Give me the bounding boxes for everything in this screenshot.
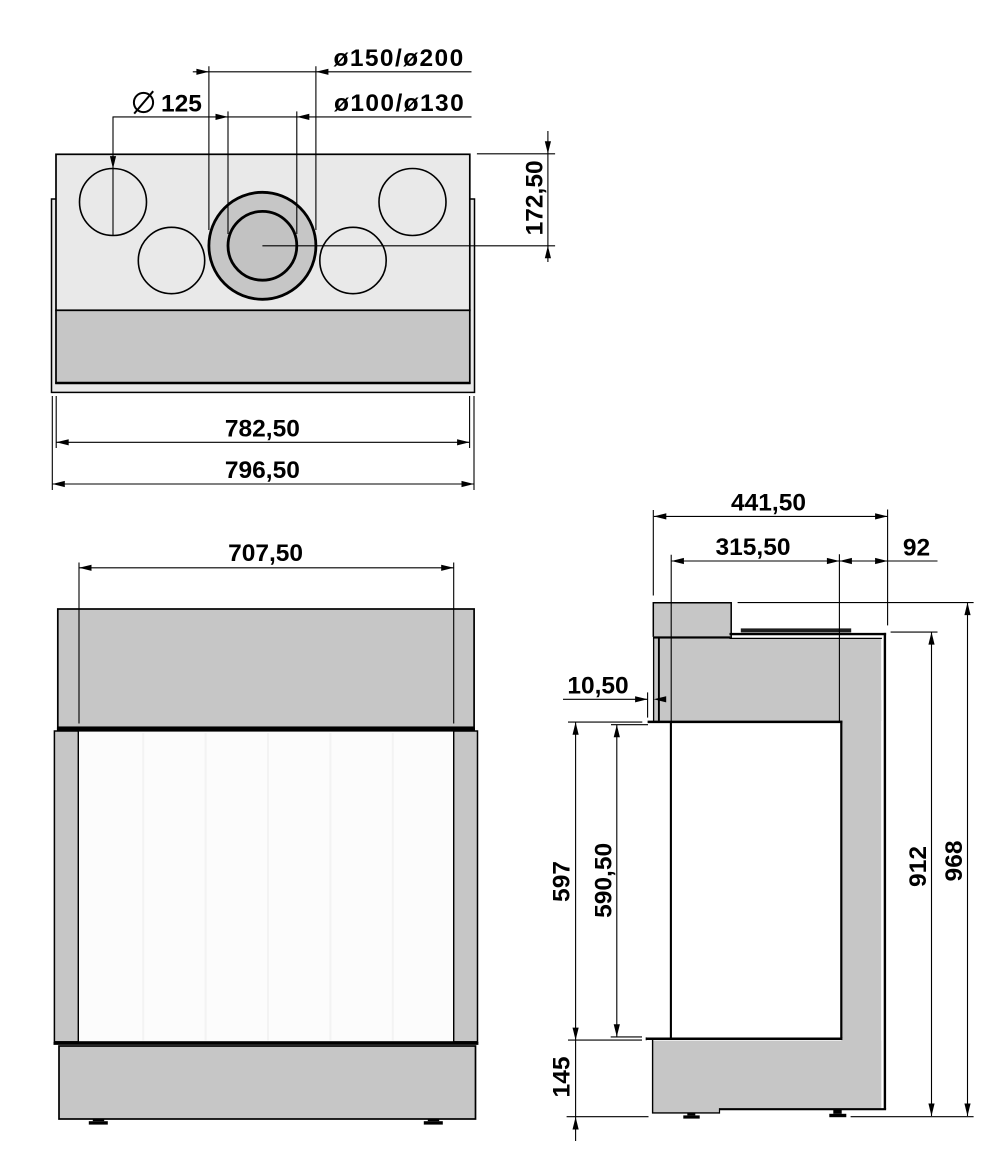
svg-text:172,50: 172,50 <box>521 160 548 235</box>
svg-text:92: 92 <box>903 534 930 561</box>
svg-text:441,50: 441,50 <box>731 489 806 516</box>
svg-text:10,50: 10,50 <box>567 672 628 699</box>
svg-text:707,50: 707,50 <box>228 540 303 567</box>
svg-text:ø100/ø130: ø100/ø130 <box>334 90 465 117</box>
svg-text:782,50: 782,50 <box>225 416 300 443</box>
svg-text:912: 912 <box>905 846 932 887</box>
svg-text:590,50: 590,50 <box>590 843 617 918</box>
svg-text:145: 145 <box>549 1057 576 1098</box>
svg-text:796,50: 796,50 <box>225 457 300 484</box>
svg-text:968: 968 <box>941 841 968 882</box>
svg-text:125: 125 <box>161 91 202 118</box>
svg-text:ø150/ø200: ø150/ø200 <box>334 45 465 72</box>
svg-text:315,50: 315,50 <box>716 534 791 561</box>
svg-text:597: 597 <box>549 861 576 902</box>
